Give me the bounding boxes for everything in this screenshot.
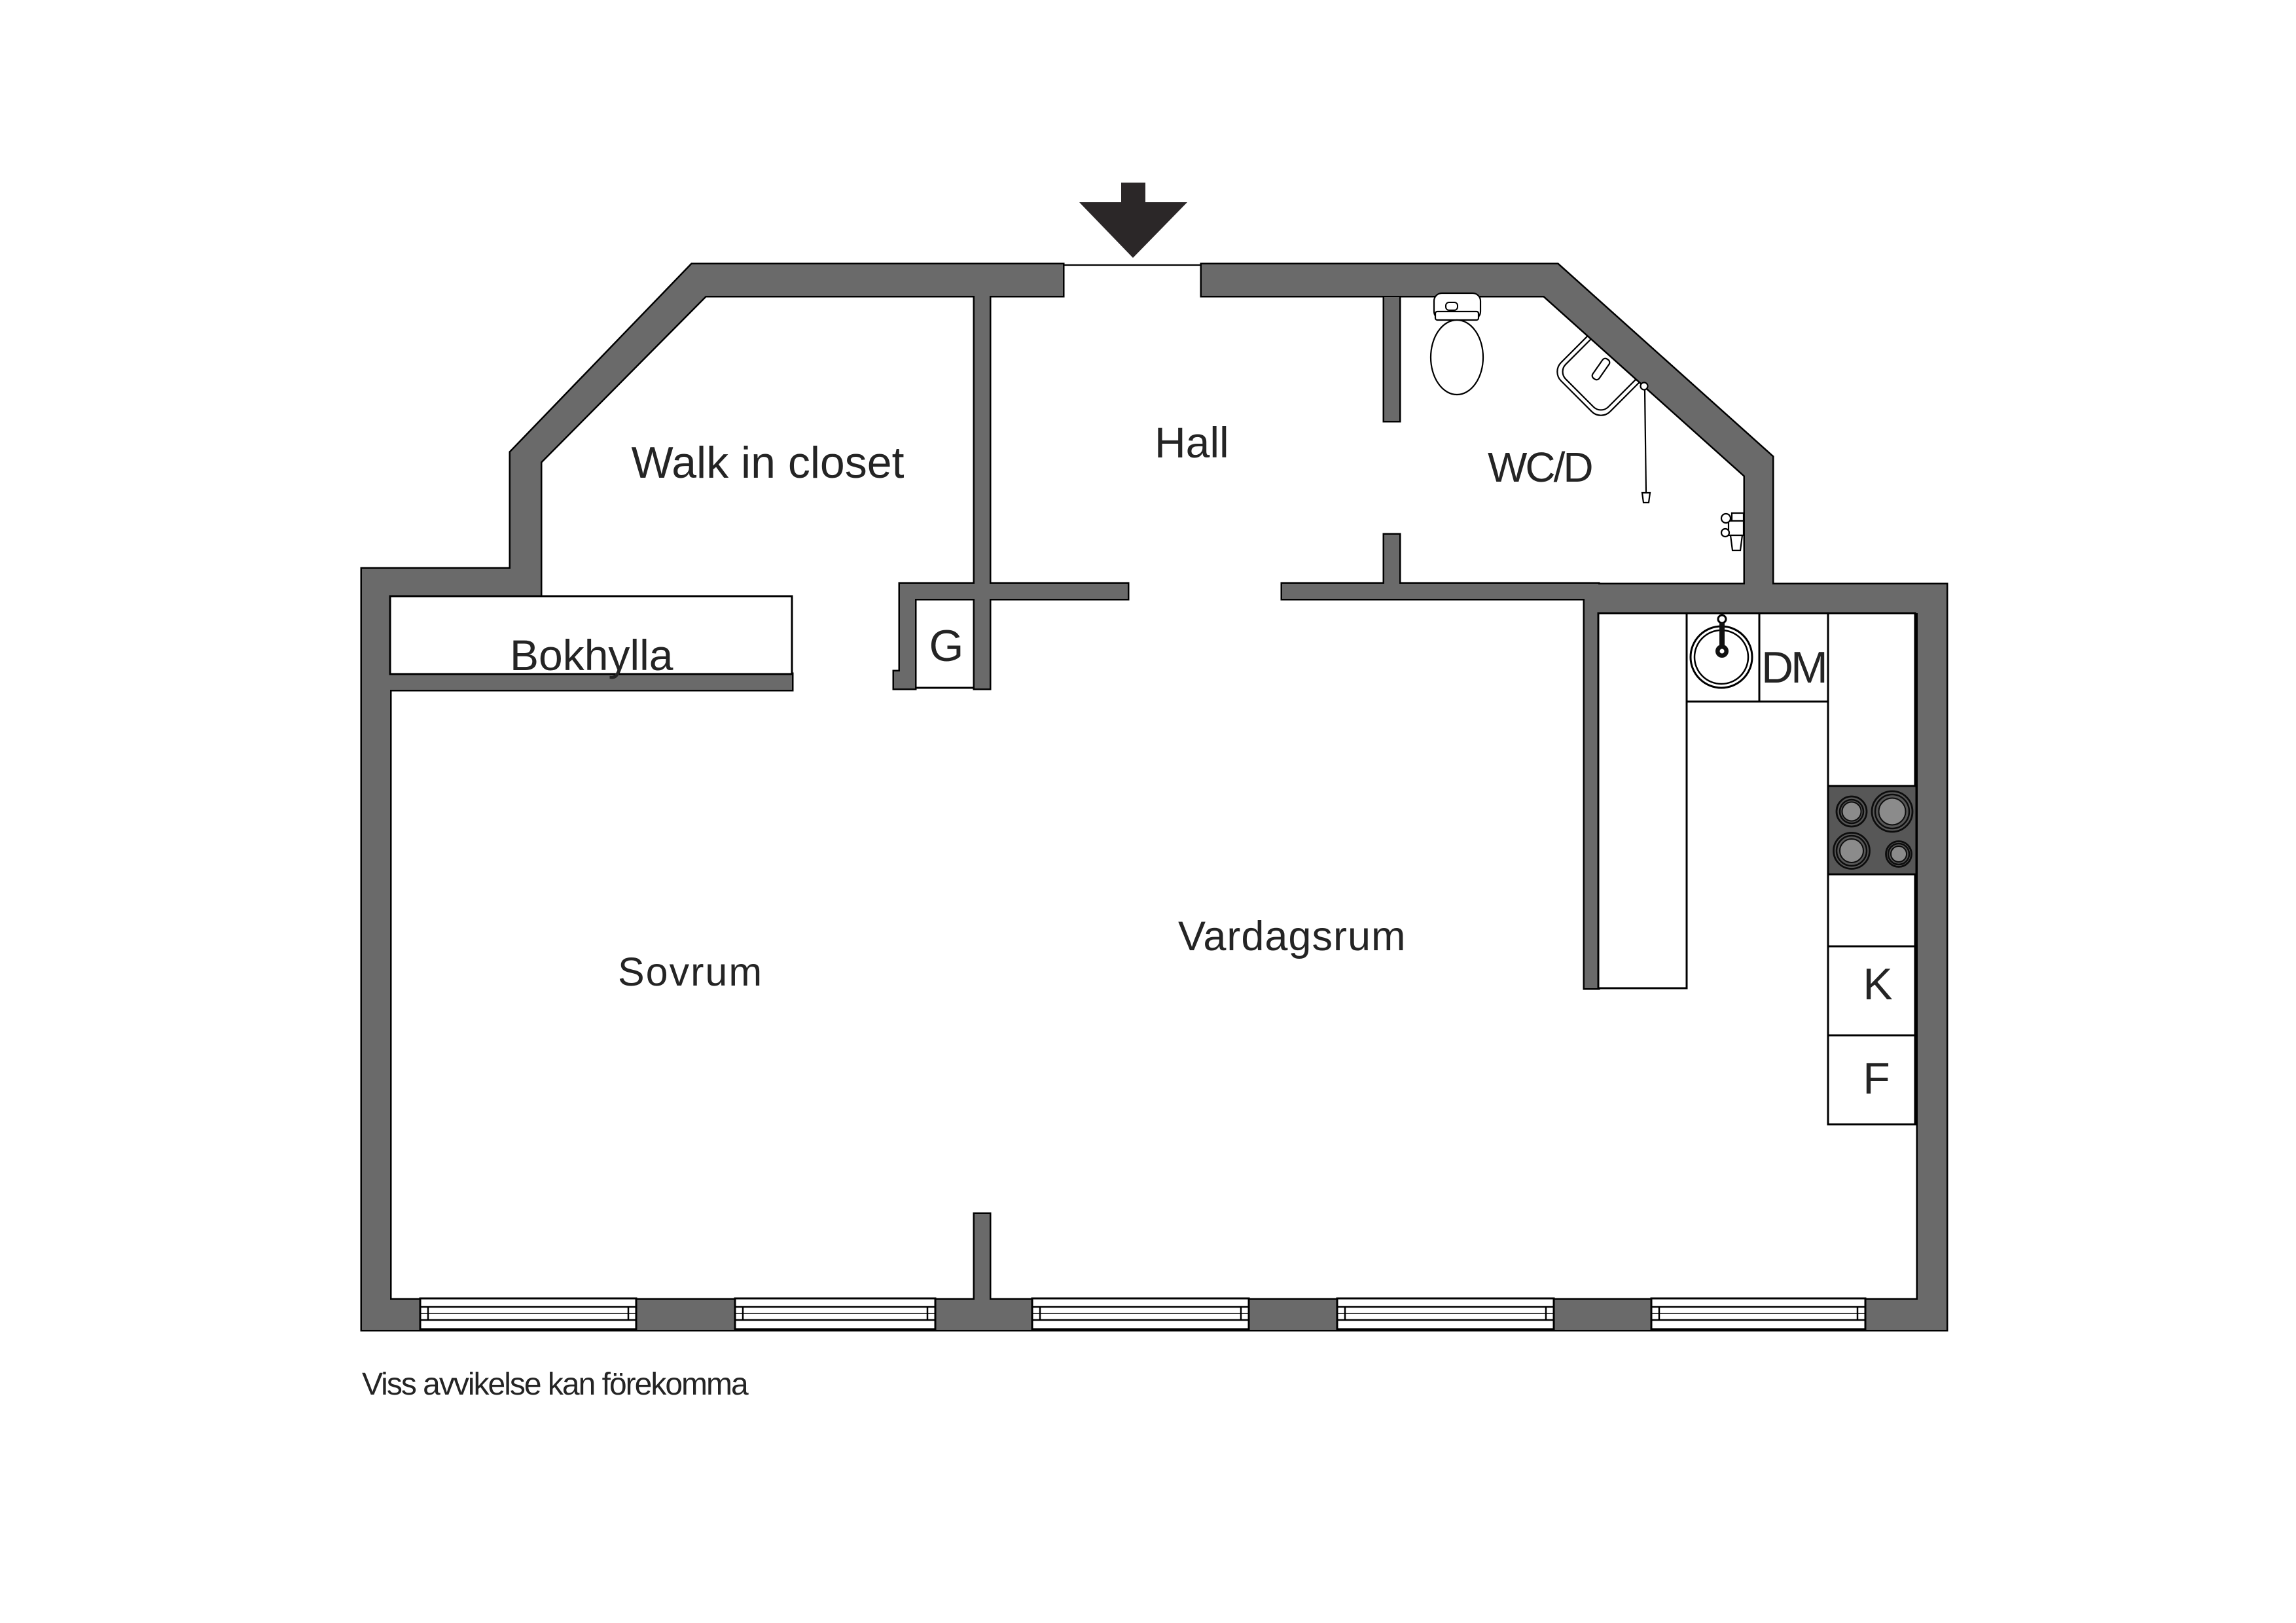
svg-text:K: K: [1863, 959, 1892, 1009]
svg-text:Walk in closet: Walk in closet: [632, 438, 905, 488]
svg-text:Hall: Hall: [1155, 418, 1229, 467]
svg-text:G: G: [929, 621, 964, 671]
svg-text:Viss avvikelse kan förekomma: Viss avvikelse kan förekomma: [362, 1367, 749, 1402]
svg-text:F: F: [1863, 1054, 1890, 1103]
svg-text:Sovrum: Sovrum: [618, 950, 763, 994]
svg-text:DM: DM: [1761, 643, 1825, 692]
svg-text:Bokhylla: Bokhylla: [510, 631, 673, 679]
svg-text:Vardagsrum: Vardagsrum: [1178, 914, 1406, 959]
svg-text:WC/D: WC/D: [1488, 444, 1592, 491]
